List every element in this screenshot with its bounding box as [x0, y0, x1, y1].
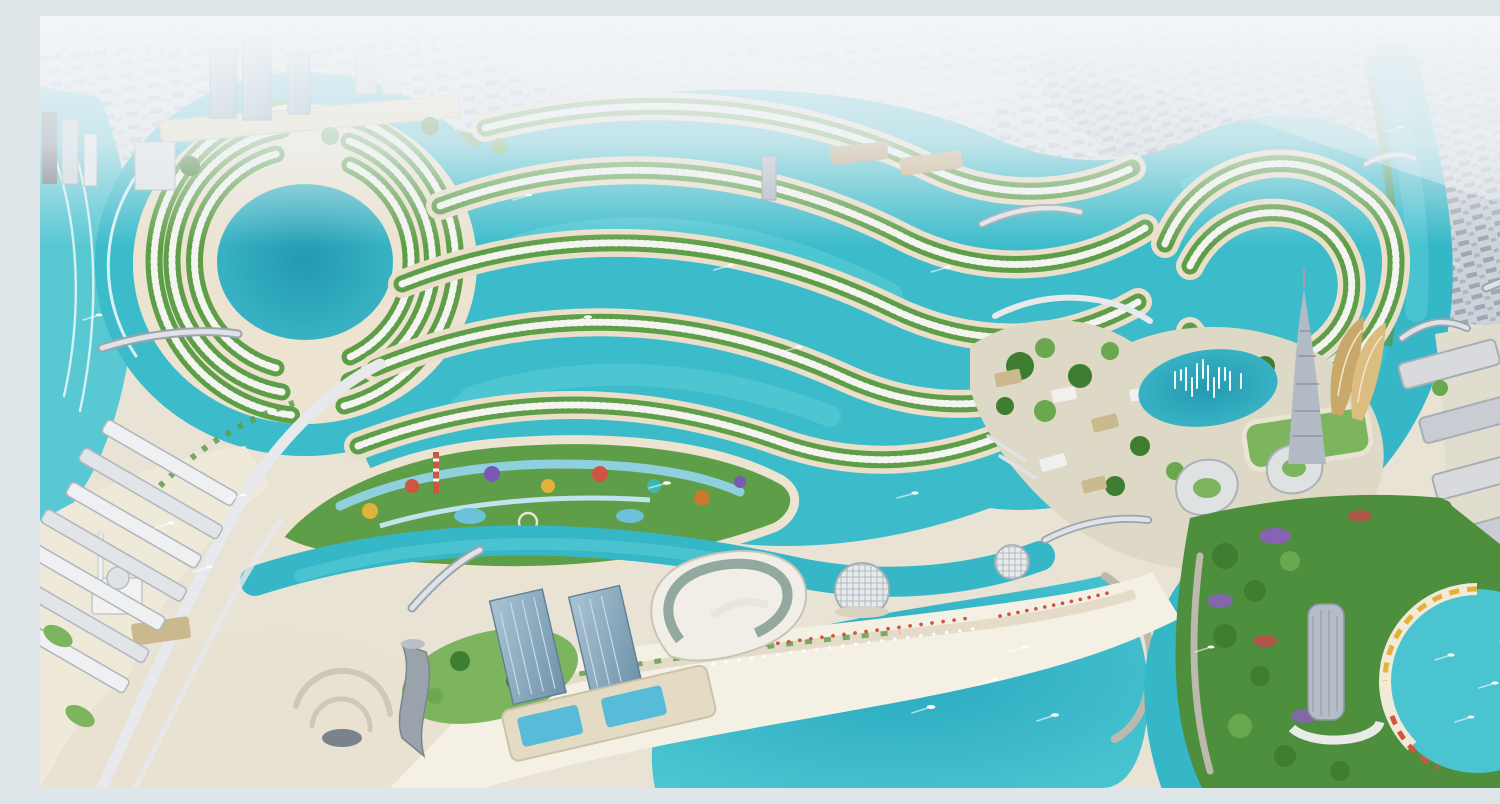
aerial-render: Aerial render of a coastal lagoon master… [40, 16, 1500, 788]
headland-park: Flowered headland park, hotel tower and … [1175, 495, 1500, 788]
aerial-render-canvas: Aerial render of a coastal lagoon master… [40, 16, 1500, 788]
